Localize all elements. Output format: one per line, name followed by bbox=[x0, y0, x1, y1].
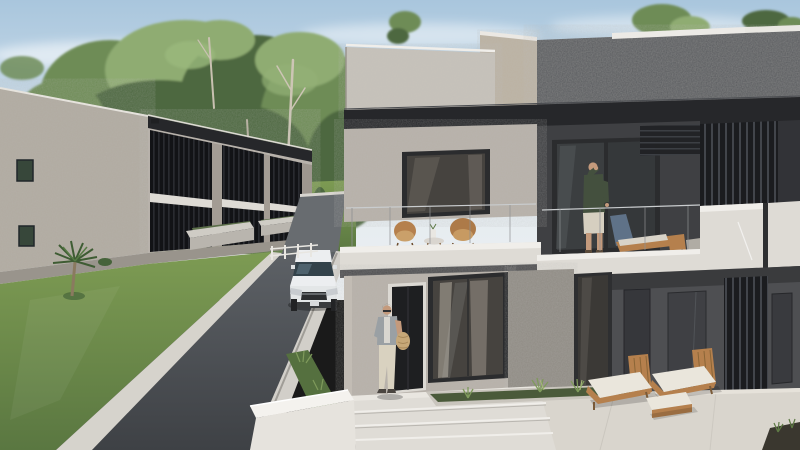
render-canvas bbox=[0, 0, 800, 450]
upper-window bbox=[402, 149, 490, 218]
architectural-render bbox=[0, 0, 800, 450]
facade-logo bbox=[151, 119, 159, 124]
right-building bbox=[340, 25, 800, 406]
shrub bbox=[98, 258, 112, 266]
ground-floor bbox=[344, 266, 800, 406]
ground-door-2 bbox=[574, 272, 612, 389]
woven-bag bbox=[396, 332, 410, 350]
ground-window bbox=[428, 272, 508, 383]
